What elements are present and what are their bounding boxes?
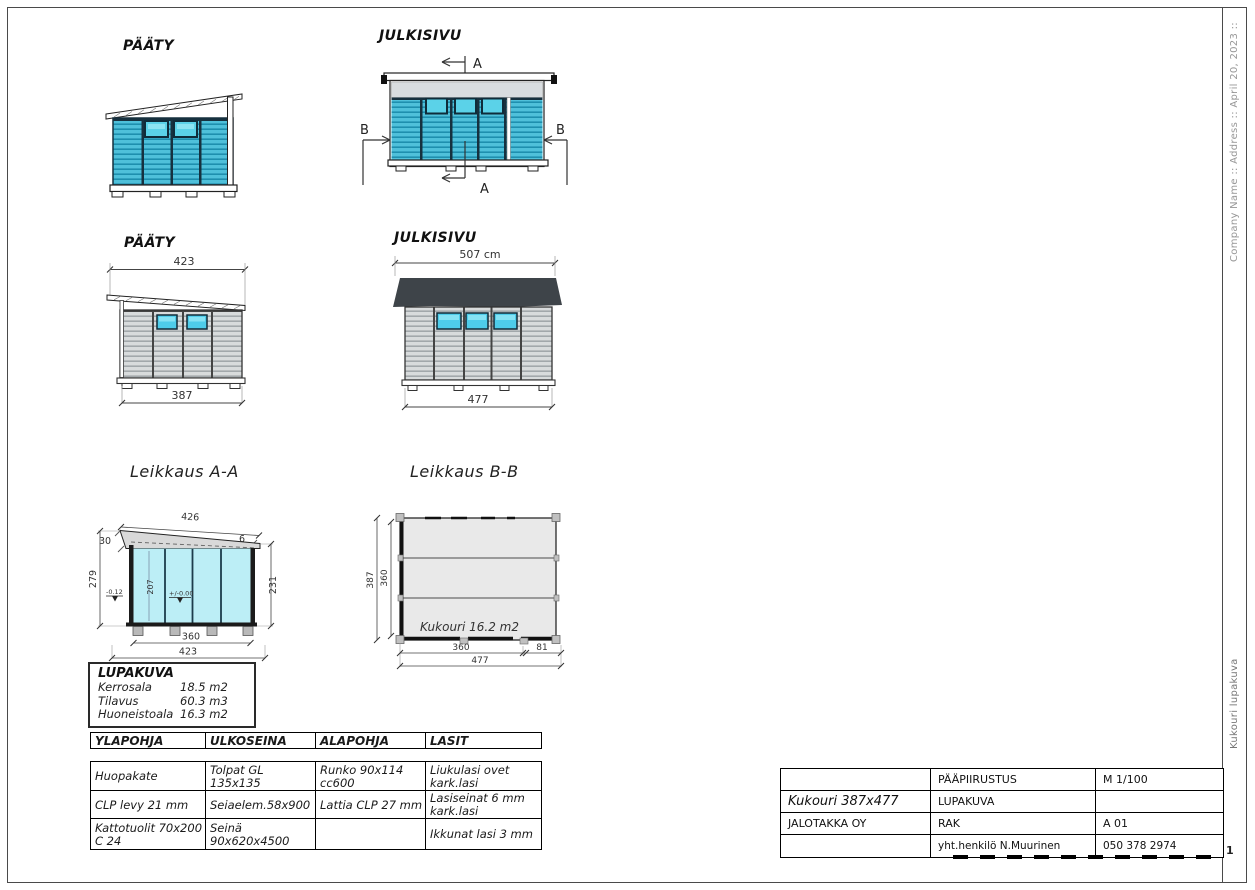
- fascia-end: [381, 75, 387, 84]
- foot: [454, 386, 463, 391]
- dim-81: 81: [536, 643, 547, 653]
- paaty-top-label: PÄÄTY: [123, 38, 174, 54]
- spec-cell: Tolpat GL 135x135: [206, 762, 316, 791]
- section-aa-drawing: 426 30 6 207 -0.12 +/-0.00 279 231 360: [85, 505, 290, 675]
- dim-360-left: 360: [380, 569, 390, 586]
- spec-cell: Ikkunat lasi 3 mm: [426, 819, 541, 849]
- foot: [528, 166, 538, 171]
- spec-cell: Seiaelem.58x900: [206, 791, 316, 819]
- window-glint: [177, 124, 194, 129]
- company-name: JALOTAKKA OY: [781, 813, 931, 835]
- foundation-pad: [170, 627, 180, 636]
- spec-header-cell: YLAPOHJA: [91, 733, 206, 748]
- foot: [230, 384, 240, 389]
- corner-post: [396, 636, 404, 644]
- window-glint: [189, 317, 205, 322]
- dim-423: 423: [179, 647, 197, 658]
- fascia: [384, 73, 554, 81]
- julkisivu-dimensioned-drawing: 507 cm 477: [390, 247, 570, 417]
- spec-cell: Lattia CLP 27 mm: [316, 791, 426, 819]
- foot: [157, 384, 167, 389]
- dim-279: 279: [88, 570, 99, 588]
- panel-separator: [211, 310, 213, 378]
- mid-post: [398, 555, 403, 561]
- panel-separator: [504, 98, 507, 161]
- dim-207: 207: [146, 579, 155, 594]
- contact-phone: 050 378 2974: [1096, 835, 1223, 857]
- foot: [186, 192, 197, 198]
- spec-table-body: Huopakate Tolpat GL 135x135 Runko 90x114…: [90, 761, 542, 850]
- lupakuva-info-box: LUPAKUVA Kerrosala 18.5 m2 Tilavus 60.3 …: [88, 662, 256, 728]
- foot: [150, 192, 161, 198]
- corner-post: [228, 97, 234, 185]
- window-glint: [496, 315, 515, 320]
- panel-separator: [420, 98, 423, 161]
- spec-header-cell: LASIT: [426, 733, 541, 748]
- dim-387: 387: [366, 571, 376, 588]
- spec-cell: Kattotuolit 70x200 C 24: [91, 819, 206, 849]
- mid-post: [554, 555, 559, 561]
- dim-477: 477: [468, 393, 489, 406]
- foot: [446, 166, 456, 171]
- mid-post: [554, 595, 559, 601]
- spec-header-cell: ULKOSEINA: [206, 733, 316, 748]
- julkisivu-elevation-drawing: A B B A: [360, 48, 615, 200]
- section-marker-a: A: [473, 57, 482, 72]
- spec-cell: Huopakate: [91, 762, 206, 791]
- base-rail: [402, 380, 555, 386]
- spec-table-header: YLAPOHJA ULKOSEINA ALAPOHJA LASIT: [90, 732, 542, 749]
- dim-387: 387: [172, 389, 193, 402]
- base-rail: [110, 185, 237, 192]
- section-line-b-left: [363, 140, 390, 185]
- dim-477: 477: [471, 656, 488, 666]
- spec-cell: Seinä 90x620x4500: [206, 819, 316, 849]
- panel-separator: [182, 310, 184, 378]
- redaction-marks: [953, 855, 1211, 859]
- discipline: RAK: [931, 813, 1096, 835]
- level-minus-012: -0.12: [106, 588, 123, 596]
- paaty-elevation-drawing: [100, 70, 250, 205]
- foot: [112, 192, 123, 198]
- section-marker-a: A: [480, 182, 489, 197]
- level-triangle: [112, 596, 118, 602]
- panel-separator: [491, 307, 493, 380]
- drawing-type: PÄÄPIIRUSTUS: [931, 769, 1096, 791]
- spec-cell: Runko 90x114 cc600: [316, 762, 426, 791]
- wall-slats: [120, 310, 242, 378]
- spec-cell: CLP levy 21 mm: [91, 791, 206, 819]
- roof-beam: [107, 295, 245, 311]
- window: [455, 99, 476, 114]
- scale: M 1/100: [1096, 769, 1223, 791]
- panel-separator: [520, 307, 522, 380]
- spec-cell: [316, 819, 426, 849]
- panel-separator: [199, 118, 202, 185]
- corner-post: [552, 636, 560, 644]
- area-label: Kukouri 16.2 m2: [420, 620, 519, 634]
- foot: [500, 386, 509, 391]
- spec-cell: Liukulasi ovet kark.lasi: [426, 762, 541, 791]
- wall-thick-left: [400, 518, 404, 640]
- title-block-cell: [1096, 791, 1223, 813]
- dim-507cm: 507 cm: [459, 248, 500, 261]
- title-block: PÄÄPIIRUSTUS M 1/100 Kukouri 387x477 LUP…: [780, 768, 1224, 858]
- section-marker-b: B: [360, 123, 369, 138]
- document-sideline: Kukouri lupakuva: [1223, 638, 1246, 770]
- page-number: 1: [1226, 844, 1234, 857]
- foot: [198, 384, 208, 389]
- foundation-pad: [207, 627, 217, 636]
- lupakuva-title: LUPAKUVA: [98, 666, 248, 681]
- foot: [408, 386, 417, 391]
- corner-post: [120, 301, 124, 378]
- dim-30: 30: [99, 536, 111, 547]
- mid-post: [398, 595, 403, 601]
- section-bb-label: Leikkaus B-B: [410, 462, 519, 481]
- panel-separator: [450, 98, 453, 161]
- window-glint: [148, 124, 165, 129]
- info-value: 16.3 m2: [180, 708, 228, 722]
- julkisivu-dim-label: JULKISIVU: [394, 230, 477, 246]
- info-value: 18.5 m2: [180, 681, 228, 695]
- title-block-cell: [781, 769, 931, 791]
- paaty-dimensioned-drawing: 423 387: [100, 252, 255, 412]
- section-bb-drawing: Kukouri 16.2 m2 387 360 360 81 477: [365, 505, 580, 680]
- foot: [396, 166, 406, 171]
- product-name: Kukouri 387x477: [781, 791, 931, 813]
- spec-header-cell: ALAPOHJA: [316, 733, 426, 748]
- foot: [539, 386, 548, 391]
- corner-post: [552, 514, 560, 522]
- foot: [224, 192, 235, 198]
- corner-post: [396, 514, 404, 522]
- upper-band: [392, 82, 543, 98]
- info-value: 60.3 m3: [180, 695, 228, 709]
- drawing-subtype: LUPAKUVA: [931, 791, 1096, 813]
- panel-separator: [171, 118, 174, 185]
- window: [426, 99, 447, 114]
- roof: [393, 278, 562, 307]
- paaty-dim-label: PÄÄTY: [124, 235, 175, 251]
- base-rail: [117, 378, 245, 384]
- info-row: Tilavus 60.3 m3: [98, 695, 248, 709]
- panel-separator: [142, 118, 145, 185]
- panel-separator: [433, 307, 435, 380]
- drawing-sheet: PÄÄTY JULKISIVU PÄÄTY JULKISIVU Leikkaus…: [0, 0, 1255, 890]
- level-zero: +/-0.00: [169, 590, 193, 598]
- contact-person: yht.henkilö N.Muurinen: [931, 835, 1096, 857]
- foot: [476, 166, 486, 171]
- info-label: Kerrosala: [98, 681, 180, 695]
- spec-cell: Lasiseinat 6 mm kark.lasi: [426, 791, 541, 819]
- dim-423: 423: [174, 255, 195, 268]
- window: [482, 99, 503, 114]
- wall-section-right: [251, 548, 256, 623]
- foot: [122, 384, 132, 389]
- window-glint: [439, 315, 459, 320]
- window-glint: [159, 317, 175, 322]
- section-aa-label: Leikkaus A-A: [130, 462, 239, 481]
- section-marker-b: B: [556, 123, 565, 138]
- company-sideline: Company Name :: Address :: April 20, 202…: [1223, 10, 1246, 275]
- panel-separator: [477, 98, 480, 161]
- wall-section-left: [129, 545, 134, 623]
- dim-231: 231: [268, 576, 279, 594]
- corner-trim: [507, 98, 511, 161]
- foundation-pad: [133, 627, 143, 636]
- foundation-pad: [243, 627, 253, 636]
- dim-360: 360: [182, 632, 200, 643]
- dim-426: 426: [181, 511, 200, 523]
- info-label: Tilavus: [98, 695, 180, 709]
- panel-separator: [152, 310, 154, 378]
- info-row: Kerrosala 18.5 m2: [98, 681, 248, 695]
- julkisivu-top-label: JULKISIVU: [379, 28, 462, 44]
- mid-post: [520, 638, 528, 644]
- info-label: Huoneistoala: [98, 708, 180, 722]
- fascia-end: [551, 75, 557, 84]
- base-rail: [388, 160, 548, 166]
- panel-separator: [463, 307, 465, 380]
- window-glint: [468, 315, 486, 320]
- info-row: Huoneistoala 16.3 m2: [98, 708, 248, 722]
- title-block-cell: [781, 835, 931, 857]
- sheet-number: A 01: [1096, 813, 1223, 835]
- dim-360-bottom: 360: [452, 643, 469, 653]
- floor-section: [126, 623, 257, 627]
